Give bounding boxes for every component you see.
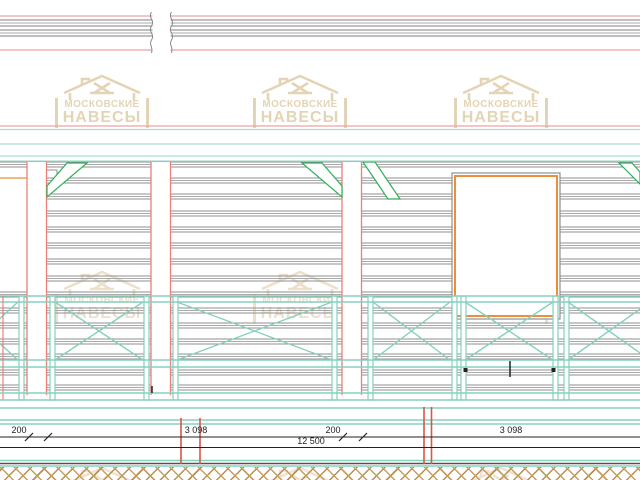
railing-baluster [332,296,337,400]
dimension-total-label: 12 500 [297,436,325,446]
railing-baluster [452,296,457,400]
marker-square [464,368,468,372]
knee-brace [302,163,342,197]
railing-baluster [19,296,24,400]
railing-baluster [368,296,373,400]
marker-square [552,368,556,372]
knee-brace [47,163,87,197]
dimension-label: 3 098 [500,425,523,435]
railing-baluster [564,296,569,400]
railing-baluster [173,296,178,400]
railing-baluster [50,296,55,400]
railing-baluster [553,296,558,400]
dimension-label: 200 [11,425,26,435]
dimension-label: 200 [325,425,340,435]
dimension-label: 3 098 [185,425,208,435]
window-frame-inner [455,176,557,316]
railing-baluster [461,296,466,400]
break-gap [153,12,171,53]
drawing-linework: 2003 0982003 09812 500 [0,0,640,480]
cad-elevation-canvas: МОСКОВСКИЕНАВЕСЫМОСКОВСКИЕНАВЕСЫМОСКОВСК… [0,0,640,480]
railing-baluster [144,296,149,400]
